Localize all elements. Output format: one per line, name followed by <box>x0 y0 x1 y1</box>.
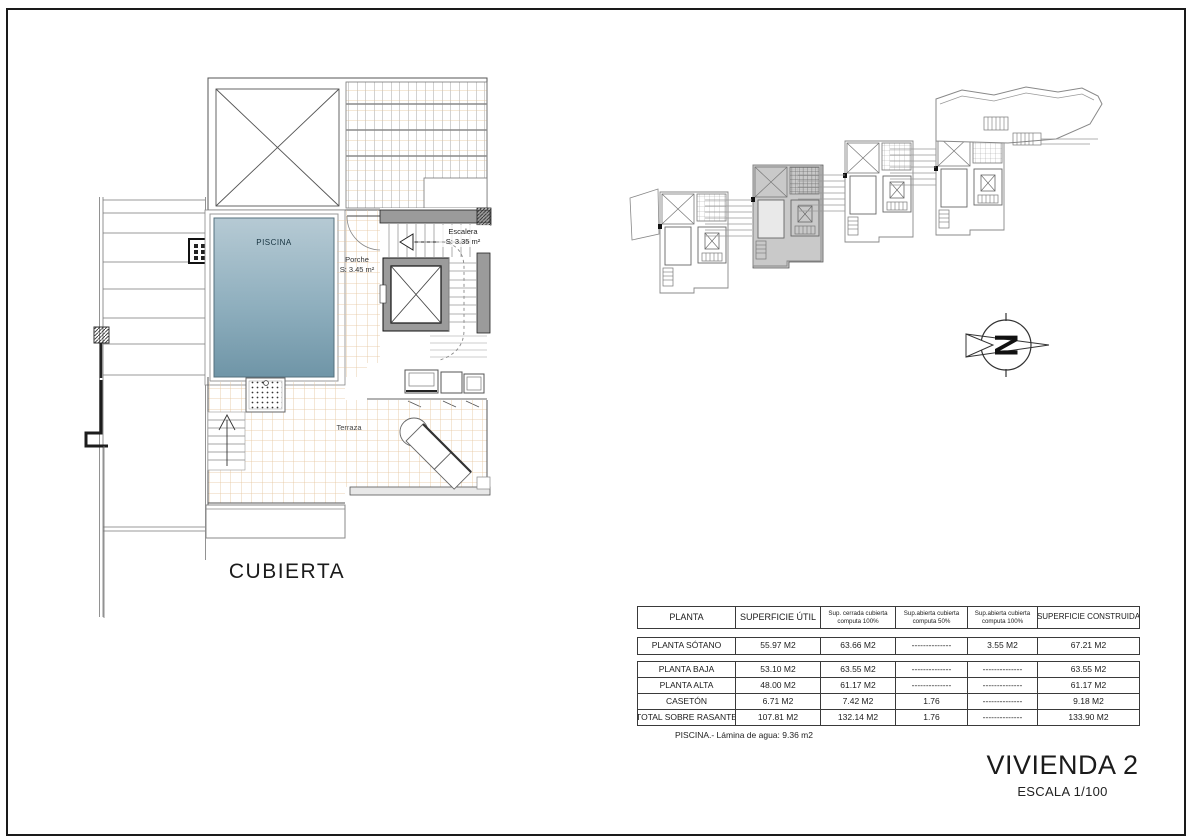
north-arrow: N <box>966 313 1049 377</box>
areas-table: PLANTA SUPERFICIE ÚTIL Sup. cerrada cubi… <box>637 606 1140 740</box>
core-wall-right <box>477 253 490 333</box>
plan-caption: CUBIERTA <box>229 560 345 583</box>
table-cell: 63.55 M2 <box>820 662 895 677</box>
sheet-title: VIVIENDA 2 <box>935 750 1190 781</box>
table-cell: -------------- <box>895 662 967 677</box>
parapet-band <box>206 505 345 538</box>
header-cell: Sup.abierta cubiertacomputa 100% <box>967 607 1037 628</box>
porche-label: Porche <box>345 255 369 264</box>
upper-plot <box>936 87 1102 145</box>
table-cell: 107.81 M2 <box>735 710 820 725</box>
table-cell: PLANTA BAJA <box>638 662 735 677</box>
table-cell: TOTAL SOBRE RASANTE <box>638 710 735 725</box>
table-row: CASETÓN 6.71 M2 7.42 M2 1.76 -----------… <box>638 693 1139 709</box>
table-row: PLANTA BAJA 53.10 M2 63.55 M2 ----------… <box>638 662 1139 677</box>
table-cell: 133.90 M2 <box>1037 710 1139 725</box>
table-cell: 48.00 M2 <box>735 678 820 693</box>
escalera-label: Escalera <box>448 227 478 236</box>
escalera-area-label: S: 3.35 m² <box>446 237 481 246</box>
table-row-sotano: PLANTA SÓTANO 55.97 M2 63.66 M2 --------… <box>637 637 1140 655</box>
table-cell: 7.42 M2 <box>820 694 895 709</box>
table-cell: -------------- <box>895 678 967 693</box>
header-cell: PLANTA <box>638 607 735 628</box>
table-row-total: TOTAL SOBRE RASANTE 107.81 M2 132.14 M2 … <box>638 709 1139 725</box>
table-cell: 61.17 M2 <box>820 678 895 693</box>
piscina-label: PISCINA <box>256 238 292 247</box>
boundary-step <box>86 327 109 618</box>
table-cell: 3.55 M2 <box>967 638 1037 654</box>
porche-area-label: S: 3.45 m² <box>340 265 375 274</box>
header-cell: Sup. cerrada cubiertacomputa 100% <box>820 607 895 628</box>
title-block: VIVIENDA 2 ESCALA 1/100 <box>935 750 1190 799</box>
pool: PISCINA <box>205 210 345 385</box>
header-cell: Sup.abierta cubiertacomputa 50% <box>895 607 967 628</box>
table-cell: 1.76 <box>895 710 967 725</box>
table-cell: 53.10 M2 <box>735 662 820 677</box>
table-cell: -------------- <box>895 638 967 654</box>
table-cell: -------------- <box>967 662 1037 677</box>
table-cell: -------------- <box>967 710 1037 725</box>
table-cell: 9.18 M2 <box>1037 694 1139 709</box>
table-cell: 63.55 M2 <box>1037 662 1139 677</box>
terraza-label: Terraza <box>336 423 362 432</box>
table-cell: CASETÓN <box>638 694 735 709</box>
table-footnote: PISCINA.- Lámina de agua: 9.36 m2 <box>675 730 1140 740</box>
table-cell: 61.17 M2 <box>1037 678 1139 693</box>
table-cell: 1.76 <box>895 694 967 709</box>
table-cell: 55.97 M2 <box>735 638 820 654</box>
sheet-scale: ESCALA 1/100 <box>935 784 1190 799</box>
core-wall-top <box>380 210 490 223</box>
table-cell: -------------- <box>967 694 1037 709</box>
shower-pad <box>246 378 285 412</box>
header-cell: SUPERFICIE CONSTRUIDA <box>1037 607 1139 628</box>
table-cell: PLANTA ALTA <box>638 678 735 693</box>
roof-plan: PISCINA Porche S: 3.45 m² <box>86 78 491 618</box>
table-cell: PLANTA SÓTANO <box>638 638 735 654</box>
drawing-sheet: PISCINA Porche S: 3.45 m² <box>0 0 1192 840</box>
table-cell: 63.66 M2 <box>820 638 895 654</box>
table-body: PLANTA BAJA 53.10 M2 63.55 M2 ----------… <box>637 661 1140 726</box>
table-cell: 6.71 M2 <box>735 694 820 709</box>
stair-core: Escalera S: 3.35 m² <box>380 208 491 378</box>
table-row: PLANTA ALTA 48.00 M2 61.17 M2 ----------… <box>638 677 1139 693</box>
terrace-stairs <box>208 412 245 470</box>
site-plan <box>630 87 1102 293</box>
table-cell: 132.14 M2 <box>820 710 895 725</box>
porch: Porche S: 3.45 m² <box>337 210 383 377</box>
table-header-row: PLANTA SUPERFICIE ÚTIL Sup. cerrada cubi… <box>637 606 1140 629</box>
north-letter: N <box>988 333 1024 356</box>
table-cell: 67.21 M2 <box>1037 638 1139 654</box>
header-cell: SUPERFICIE ÚTIL <box>735 607 820 628</box>
table-cell: -------------- <box>967 678 1037 693</box>
caseton-roof <box>208 78 487 210</box>
